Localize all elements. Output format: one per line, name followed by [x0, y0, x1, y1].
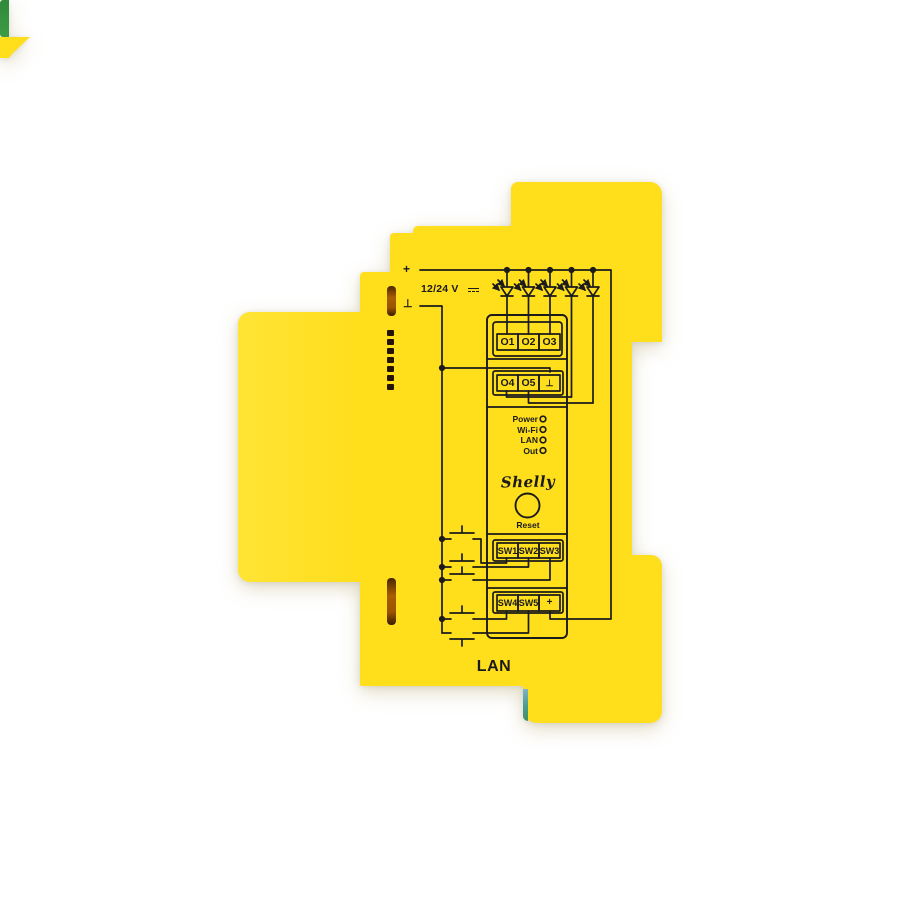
terminal-label-sw5: SW5 — [518, 598, 539, 608]
dc-symbol — [468, 288, 479, 295]
vent-slot-top — [387, 286, 396, 316]
lan-port-label: LAN — [468, 658, 520, 676]
ground-input-label: ⊥ — [403, 297, 413, 310]
terminal-label-o5: O5 — [518, 377, 539, 389]
terminal-label-plus: + — [539, 597, 560, 608]
terminal-label-ground: ⊥ — [539, 378, 560, 389]
bottom-right-section — [523, 555, 662, 723]
terminal-label-o3: O3 — [539, 336, 560, 348]
brand-logo: Shelly — [497, 472, 559, 491]
terminal-label-o1: O1 — [497, 336, 518, 348]
terminal-label-sw2: SW2 — [518, 546, 539, 556]
status-led-label-power: Power — [512, 414, 538, 424]
status-led-label-out: Out — [523, 446, 538, 456]
status-led-label-lan: LAN — [521, 435, 538, 445]
vent-slot-bottom — [387, 578, 396, 625]
plus-input-label: + — [403, 262, 410, 276]
product-photo: + 12/24 V ⊥ O1 O2 O3 O4 O5 ⊥ Power Wi-Fi… — [0, 0, 901, 901]
shelly-device: + 12/24 V ⊥ O1 O2 O3 O4 O5 ⊥ Power Wi-Fi… — [0, 0, 901, 901]
terminal-label-sw1: SW1 — [497, 546, 518, 556]
terminal-label-o2: O2 — [518, 336, 539, 348]
green-accent-edge — [0, 0, 9, 37]
din-hook — [0, 37, 30, 58]
terminal-label-sw3: SW3 — [539, 546, 560, 556]
terminal-label-o4: O4 — [497, 377, 518, 389]
power-rating-label: 12/24 V — [421, 283, 459, 295]
status-led-label-wifi: Wi-Fi — [517, 425, 538, 435]
teal-accent-edge — [523, 689, 528, 721]
terminal-label-sw4: SW4 — [497, 598, 518, 608]
front-terminal-block — [238, 312, 366, 582]
reset-label: Reset — [502, 520, 554, 530]
